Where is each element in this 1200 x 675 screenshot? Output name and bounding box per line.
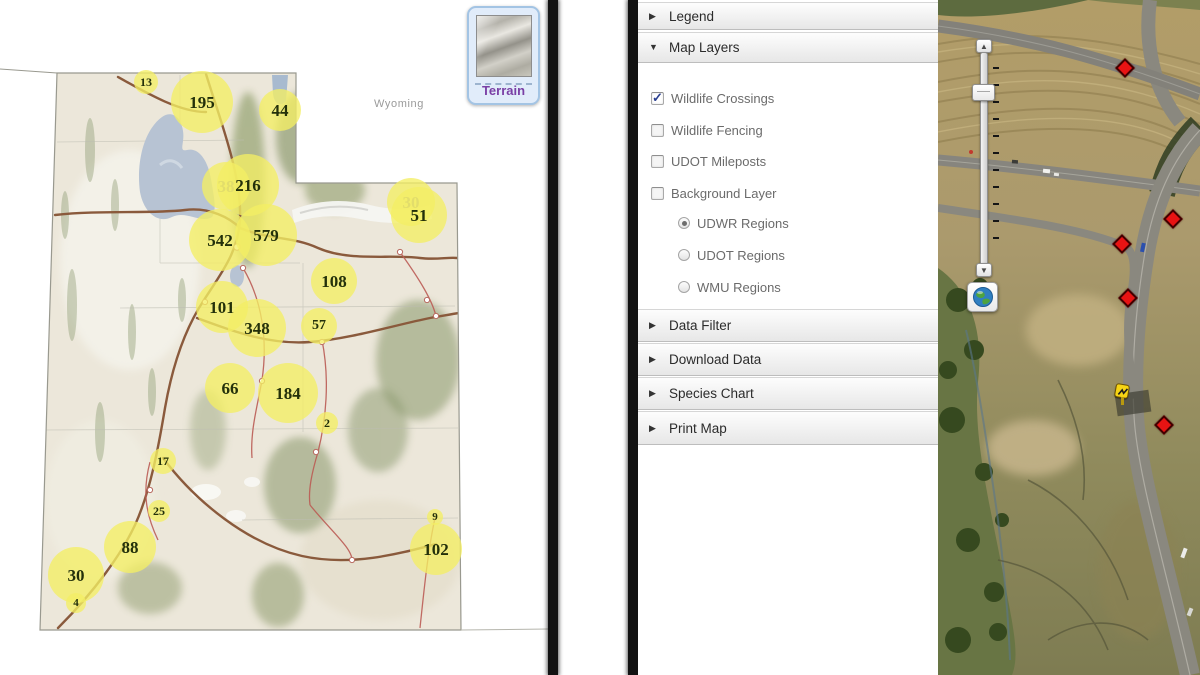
terrain-thumbnail-icon: [476, 15, 532, 77]
sign-post: [1121, 397, 1124, 405]
cluster-marker[interactable]: 195: [171, 71, 233, 133]
zoom-tick: [993, 220, 999, 222]
screenshot-divider-bar: [628, 0, 638, 675]
terrain-button-label: Terrain: [469, 83, 538, 98]
zoom-tick: [993, 67, 999, 69]
zoom-tick: [993, 101, 999, 103]
aerial-detail-map[interactable]: [938, 0, 1200, 675]
zoom-tick: [993, 169, 999, 171]
chevron-right-icon: [649, 321, 661, 330]
wmu-regions-radio[interactable]: [678, 281, 690, 293]
cluster-marker[interactable]: 184: [258, 363, 318, 423]
accordion-download-data-label: Download Data: [669, 352, 761, 367]
cluster-marker[interactable]: 348: [228, 299, 286, 357]
udot-mileposts-checkbox[interactable]: [651, 155, 664, 168]
cluster-marker[interactable]: 13: [134, 70, 158, 94]
accordion-map-layers[interactable]: Map Layers: [638, 32, 938, 63]
aerial-imagery: [938, 0, 1200, 675]
wmu-regions-label: WMU Regions: [697, 280, 781, 295]
zoom-tick: [993, 237, 999, 239]
udwr-regions-radio[interactable]: [678, 217, 690, 229]
udot-regions-radio[interactable]: [678, 249, 690, 261]
wildlife-fencing-label: Wildlife Fencing: [671, 123, 763, 138]
cluster-marker[interactable]: 17: [150, 448, 176, 474]
terrain-basemap-button[interactable]: Terrain: [467, 6, 540, 105]
accordion-legend-label: Legend: [669, 9, 714, 24]
screenshot-divider-bar: [548, 0, 558, 675]
chevron-right-icon: [649, 12, 661, 21]
cluster-marker[interactable]: 44: [259, 89, 301, 131]
background-layer-label: Background Layer: [671, 186, 777, 201]
wildlife-sign-marker[interactable]: [1114, 384, 1130, 406]
layer-row-wildlife-crossings: Wildlife Crossings: [651, 89, 774, 107]
zoom-out-button[interactable]: ▼: [976, 263, 992, 277]
zoom-slider-handle[interactable]: [972, 84, 995, 101]
zoom-tick: [993, 135, 999, 137]
zoom-tick: [993, 203, 999, 205]
chevron-down-icon: [649, 43, 661, 52]
wildlife-fencing-checkbox[interactable]: [651, 124, 664, 137]
accordion-print-map[interactable]: Print Map: [638, 411, 938, 445]
accordion-download-data[interactable]: Download Data: [638, 343, 938, 376]
cluster-marker[interactable]: 88: [104, 521, 156, 573]
chevron-right-icon: [649, 389, 661, 398]
accordion-print-map-label: Print Map: [669, 421, 727, 436]
cluster-marker[interactable]: 108: [311, 258, 357, 304]
wyoming-state-label: Wyoming: [374, 98, 424, 110]
wildlife-crossings-checkbox[interactable]: [651, 92, 664, 105]
accordion-species-chart-label: Species Chart: [669, 386, 754, 401]
accordion-legend[interactable]: Legend: [638, 2, 938, 30]
accordion-species-chart[interactable]: Species Chart: [638, 377, 938, 410]
utah-cluster-map[interactable]: 1319544382165425793051108101348576618421…: [0, 0, 548, 675]
zoom-tick: [993, 186, 999, 188]
zoom-tick: [993, 152, 999, 154]
cluster-marker[interactable]: 4: [66, 593, 86, 613]
chevron-right-icon: [649, 355, 661, 364]
zoom-in-button[interactable]: ▲: [976, 39, 992, 53]
cluster-marker[interactable]: 2: [316, 412, 338, 434]
cluster-marker[interactable]: 51: [391, 187, 447, 243]
globe-icon: [972, 286, 994, 308]
radio-row-udwr-regions: UDWR Regions: [678, 215, 789, 231]
accordion-map-layers-label: Map Layers: [669, 40, 740, 55]
radio-row-udot-regions: UDOT Regions: [678, 247, 785, 263]
app-screenshot: 1319544382165425793051108101348576618421…: [0, 0, 1200, 675]
udot-regions-label: UDOT Regions: [697, 248, 785, 263]
layer-row-wildlife-fencing: Wildlife Fencing: [651, 121, 763, 139]
cluster-marker[interactable]: 57: [301, 308, 337, 344]
layer-row-udot-mileposts: UDOT Mileposts: [651, 152, 766, 170]
wildlife-crossings-label: Wildlife Crossings: [671, 91, 774, 106]
cluster-marker[interactable]: 25: [148, 500, 170, 522]
cluster-marker[interactable]: 102: [410, 523, 462, 575]
radio-row-wmu-regions: WMU Regions: [678, 279, 781, 295]
accordion-data-filter[interactable]: Data Filter: [638, 309, 938, 342]
layers-side-panel: Legend Map Layers Wildlife Crossings Wil…: [638, 0, 938, 675]
accordion-data-filter-label: Data Filter: [669, 318, 731, 333]
zoom-tick: [993, 118, 999, 120]
cluster-marker[interactable]: 66: [205, 363, 255, 413]
udot-mileposts-label: UDOT Mileposts: [671, 154, 766, 169]
layer-row-background-layer: Background Layer: [651, 184, 777, 202]
background-layer-checkbox[interactable]: [651, 187, 664, 200]
chevron-right-icon: [649, 424, 661, 433]
udwr-regions-label: UDWR Regions: [697, 216, 789, 231]
full-extent-globe-button[interactable]: [967, 282, 998, 312]
cluster-marker[interactable]: 579: [235, 204, 297, 266]
